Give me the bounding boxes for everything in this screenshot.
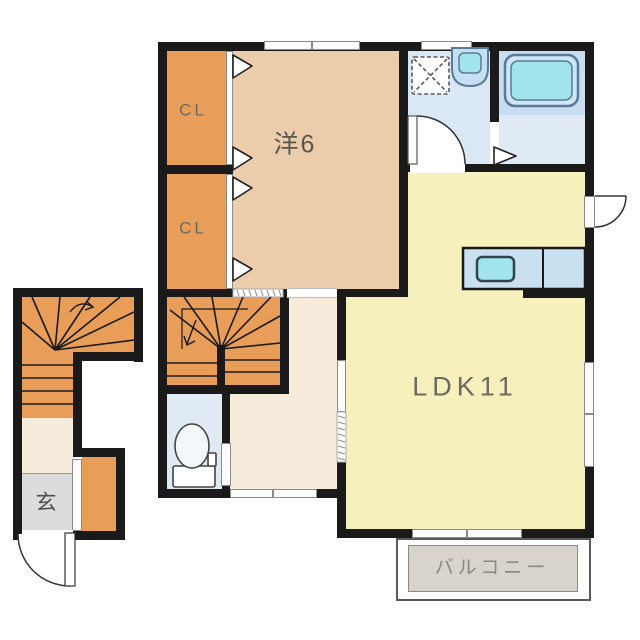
- stairs-central-treads: [167, 297, 280, 376]
- bath-folding-door-icon: [494, 147, 516, 165]
- kitchen-sink-icon: [477, 257, 514, 281]
- label-ldk: LDK11: [412, 374, 518, 401]
- entrance-door-arc: [18, 533, 75, 586]
- kitchen-counter: [463, 248, 585, 289]
- door-ldk-left-hatch: [337, 412, 346, 462]
- washroom-door-arc: [408, 116, 465, 164]
- bathtub-icon: [505, 55, 578, 106]
- sink-icon: [452, 48, 488, 86]
- fixtures-overlay: [0, 0, 640, 640]
- label-western6: 洋6: [274, 133, 317, 158]
- label-closet-lower: CL: [179, 220, 207, 237]
- toilet-icon: [173, 424, 216, 487]
- label-genkan: 玄: [36, 493, 57, 514]
- ldk-exterior-door-arc: [595, 196, 626, 227]
- label-balcony: バルコニー: [435, 559, 550, 578]
- cl-folding-door-icon: [233, 55, 252, 281]
- opening-stairs-hatch: [233, 289, 283, 297]
- floor-plan: CL CL 洋6 LDK11 玄 バルコニー: [0, 0, 640, 640]
- washing-machine-icon: [412, 57, 449, 94]
- stairs-entrance-treads: [22, 297, 134, 404]
- label-closet-upper: CL: [179, 102, 207, 119]
